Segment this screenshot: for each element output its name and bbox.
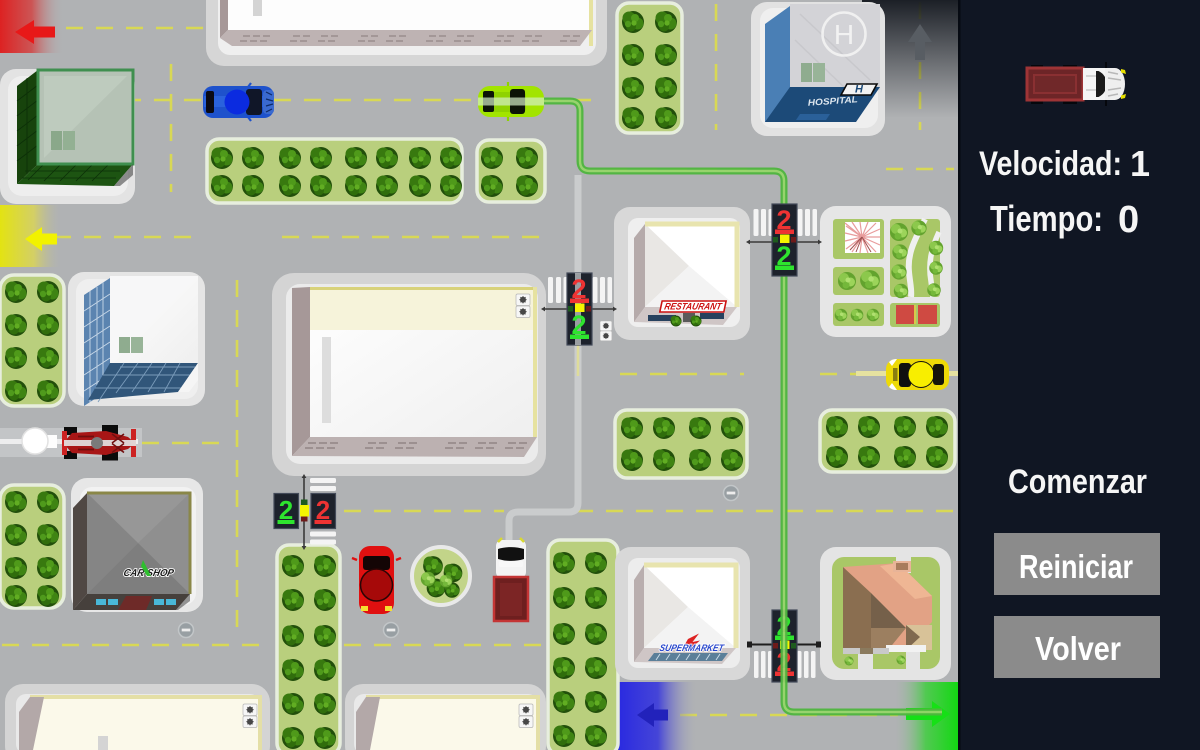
svg-text:Reiniciar: Reiniciar xyxy=(1019,548,1133,585)
svg-text:SUPERMARKET: SUPERMARKET xyxy=(658,643,725,654)
svg-text:Volver: Volver xyxy=(1035,630,1121,667)
svg-text:H: H xyxy=(834,19,854,50)
svg-text:0: 0 xyxy=(1118,199,1139,241)
svg-text:RESTAURANT: RESTAURANT xyxy=(663,302,723,313)
svg-text:Comenzar: Comenzar xyxy=(1008,463,1147,501)
svg-text:Tiempo:: Tiempo: xyxy=(990,198,1103,239)
svg-text:Velocidad:: Velocidad: xyxy=(979,145,1122,183)
svg-text:1: 1 xyxy=(1130,143,1150,184)
